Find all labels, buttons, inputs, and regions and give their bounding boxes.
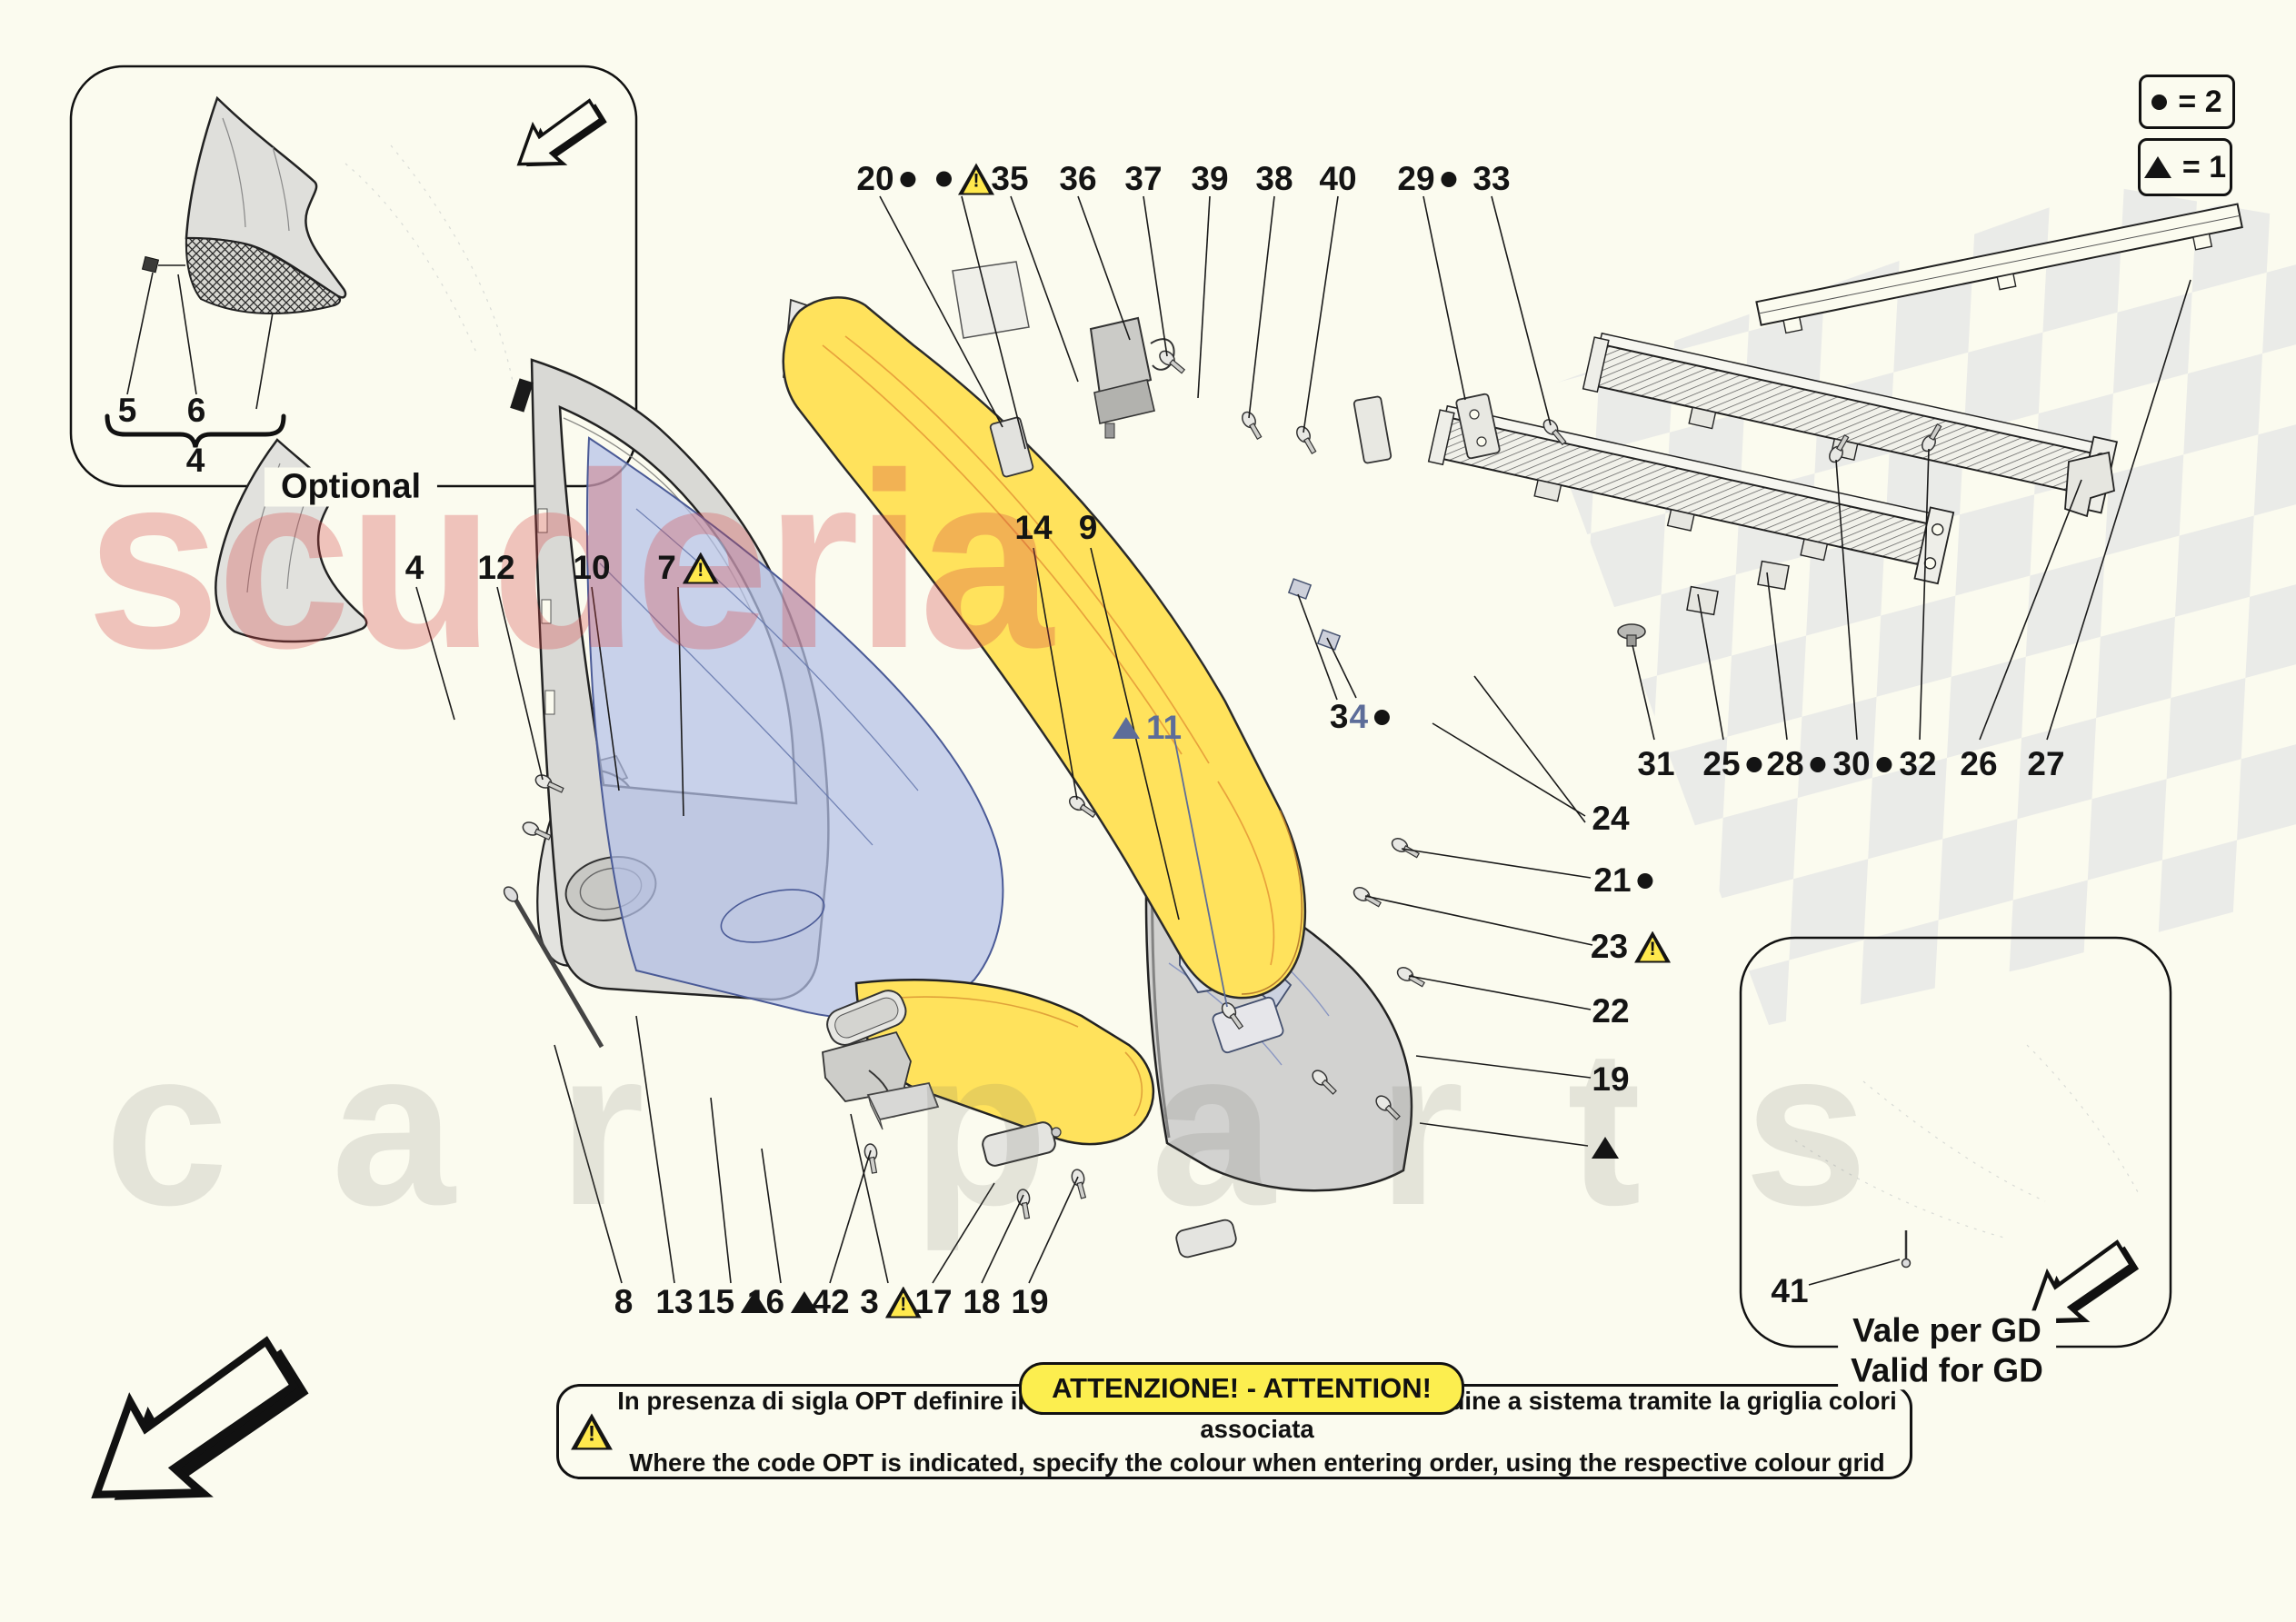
parts-diagram-page: scuderia car parts = 2 = 1 Optional Vale… xyxy=(0,0,2296,1622)
tweeter-speaker-part xyxy=(1091,318,1174,438)
callout-17: 17 xyxy=(914,1283,952,1321)
callout-19b: 19 xyxy=(1011,1283,1048,1321)
warning-icon: ! xyxy=(571,1413,613,1449)
callout-9: 9 xyxy=(1079,509,1098,547)
callout-25: 25 xyxy=(1702,745,1762,783)
warning-icon: ! xyxy=(958,164,994,195)
triangle-icon xyxy=(1113,717,1140,739)
callout-23: 23! xyxy=(1591,928,1671,966)
dot-icon xyxy=(1877,757,1892,772)
callout-5: 5 xyxy=(118,392,137,430)
valid-for-gd-label: Vale per GD Valid for GD xyxy=(1838,1310,2056,1389)
callout-11: 11 xyxy=(1113,709,1182,747)
callout-29: 29 xyxy=(1397,160,1456,198)
callout-18: 18 xyxy=(963,1283,1000,1321)
callout-14: 14 xyxy=(1014,509,1052,547)
callout-36: 36 xyxy=(1059,160,1096,198)
callout-37: 37 xyxy=(1124,160,1162,198)
callout-42: 42 xyxy=(812,1283,849,1321)
callout-19r: 19 xyxy=(1592,1060,1629,1099)
callout-24: 24 xyxy=(1592,800,1629,838)
legend-tri-text: = 1 xyxy=(2182,150,2226,185)
callout-34: 34 xyxy=(1330,698,1390,736)
callout-10: 10 xyxy=(573,549,610,587)
callout-4b: 4 xyxy=(186,442,205,480)
callout-16: 16 xyxy=(747,1283,818,1321)
direction-arrow-icon-large xyxy=(64,1311,328,1552)
callout-7: 7! xyxy=(657,549,719,587)
attention-box: ATTENZIONE! - ATTENTION! ! In presenza d… xyxy=(556,1384,1912,1479)
dot-icon xyxy=(901,172,916,187)
callout-33: 33 xyxy=(1472,160,1510,198)
callout-40: 40 xyxy=(1319,160,1356,198)
dot-icon xyxy=(2151,95,2167,110)
callout-tri-only xyxy=(1592,1137,1619,1159)
callout-26: 26 xyxy=(1960,745,1997,783)
callout-6: 6 xyxy=(187,392,206,430)
callout-22: 22 xyxy=(1592,992,1629,1030)
dot-icon xyxy=(936,172,952,187)
callout-28: 28 xyxy=(1766,745,1825,783)
callout-32: 32 xyxy=(1899,745,1936,783)
legend-dot-text: = 2 xyxy=(2178,85,2221,120)
callout-20: 20 xyxy=(856,160,915,198)
legend-triangle-equals: = 1 xyxy=(2138,138,2232,196)
dot-icon xyxy=(1442,172,1457,187)
callout-30: 30 xyxy=(1832,745,1892,783)
callout-12: 12 xyxy=(477,549,514,587)
callout-39: 39 xyxy=(1191,160,1228,198)
dot-icon xyxy=(1811,757,1826,772)
callout-31: 31 xyxy=(1637,745,1674,783)
callout-4: 4 xyxy=(405,549,424,587)
callout-27: 27 xyxy=(2027,745,2064,783)
dot-icon xyxy=(1638,873,1653,889)
callout-13: 13 xyxy=(655,1283,693,1321)
warning-icon: ! xyxy=(1634,931,1671,963)
optional-label: Optional xyxy=(265,468,437,507)
svg-text:scuderia: scuderia xyxy=(86,422,1055,701)
vale-line-it: Vale per GD xyxy=(1851,1310,2043,1350)
callout-dot-warn: ! xyxy=(936,164,994,195)
callout-21: 21 xyxy=(1593,861,1652,900)
vale-line-en: Valid for GD xyxy=(1851,1350,2043,1390)
warning-icon: ! xyxy=(683,552,719,584)
callout-35: 35 xyxy=(991,160,1028,198)
callout-8: 8 xyxy=(614,1283,634,1321)
triangle-icon xyxy=(2144,156,2171,178)
legend-dot-equals: = 2 xyxy=(2139,75,2235,129)
callout-38: 38 xyxy=(1255,160,1293,198)
attention-title-pill: ATTENZIONE! - ATTENTION! xyxy=(1019,1362,1464,1415)
direction-arrow-icon xyxy=(505,88,615,188)
callout-3: 3! xyxy=(860,1283,922,1321)
dot-icon xyxy=(1747,757,1762,772)
triangle-icon xyxy=(1592,1137,1619,1159)
dot-icon xyxy=(1374,710,1390,725)
callout-41: 41 xyxy=(1771,1272,1808,1310)
svg-text:car parts: car parts xyxy=(105,1002,1868,1251)
attention-line-english: Where the code OPT is indicated, specify… xyxy=(629,1448,1884,1478)
